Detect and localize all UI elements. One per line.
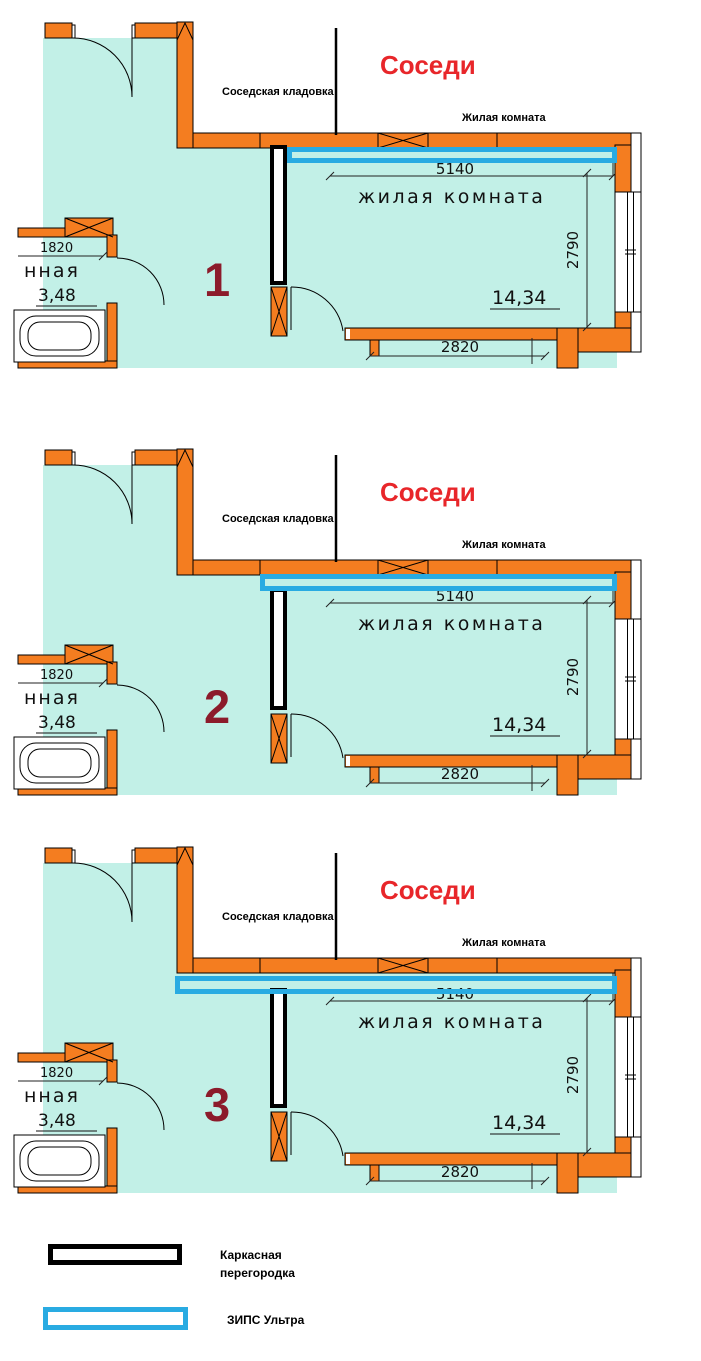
bathtub [14,1135,105,1187]
bathtub [14,310,105,362]
dim-bottom-label: 2820 [441,338,479,356]
floorplan-variant-3: 5140 [0,825,701,1210]
bathroom-label-fragment: нная [24,687,80,709]
zips-ultra-swatch [43,1307,188,1330]
bathroom-label-fragment: нная [24,1085,80,1107]
floorplan-svg-1: 5140 [0,0,701,385]
dim-bottom-label: 2820 [441,1163,479,1181]
storage-label: Соседская кладовка [222,86,335,98]
neighbors-title: Соседи [380,477,476,507]
frame-partition [272,147,285,283]
floorplan-svg-2: 5140 [0,427,701,812]
neighbor-room-label: Жилая комната [461,539,547,551]
neighbor-room-label: Жилая комната [461,112,547,124]
variant-number: 1 [204,253,230,306]
variant-number: 3 [204,1078,230,1131]
dim-height-label: 2790 [564,1056,582,1094]
neighbor-room-label: Жилая комната [461,937,547,949]
dim-height-label: 2790 [564,658,582,696]
frame-label-line1: Каркасная [220,1248,282,1262]
dim-left-label: 1820 [40,1066,73,1081]
frame-partition [272,990,285,1106]
storage-label: Соседская кладовка [222,513,335,525]
frame-partition [272,590,285,708]
neighbors-title: Соседи [380,875,476,905]
bath-area-label: 3,48 [38,286,76,306]
room-area-label: 14,34 [492,287,546,309]
room-label: жилая комната [358,613,545,635]
floorplan-variant-1: 5140 [0,0,701,385]
room-label: жилая комната [358,1011,545,1033]
bath-area-label: 3,48 [38,713,76,733]
frame-partition-swatch [48,1244,182,1265]
dim-bottom-label: 2820 [441,765,479,783]
dim-height-label: 2790 [564,231,582,269]
neighbors-title: Соседи [380,50,476,80]
dim-left-label: 1820 [40,668,73,683]
zips-label-text: ЗИПС Ультра [227,1313,304,1327]
floorplan-svg-3: 5140 [0,825,701,1210]
bathtub [14,737,105,789]
room-area-label: 14,34 [492,1112,546,1134]
dim-left-label: 1820 [40,241,73,256]
frame-label-line2: перегородка [220,1266,295,1280]
room-label: жилая комната [358,186,545,208]
storage-label: Соседская кладовка [222,911,335,923]
bath-area-label: 3,48 [38,1111,76,1131]
variant-number: 2 [204,680,230,733]
frame-partition-legend-label: Каркасная перегородка [220,1246,295,1282]
room-area-label: 14,34 [492,714,546,736]
soundproofing-options-sheet: 5140 [0,0,701,1361]
zips-ultra-legend-label: ЗИПС Ультра [227,1311,304,1329]
floorplan-variant-2: 5140 [0,427,701,812]
bathroom-label-fragment: нная [24,260,80,282]
